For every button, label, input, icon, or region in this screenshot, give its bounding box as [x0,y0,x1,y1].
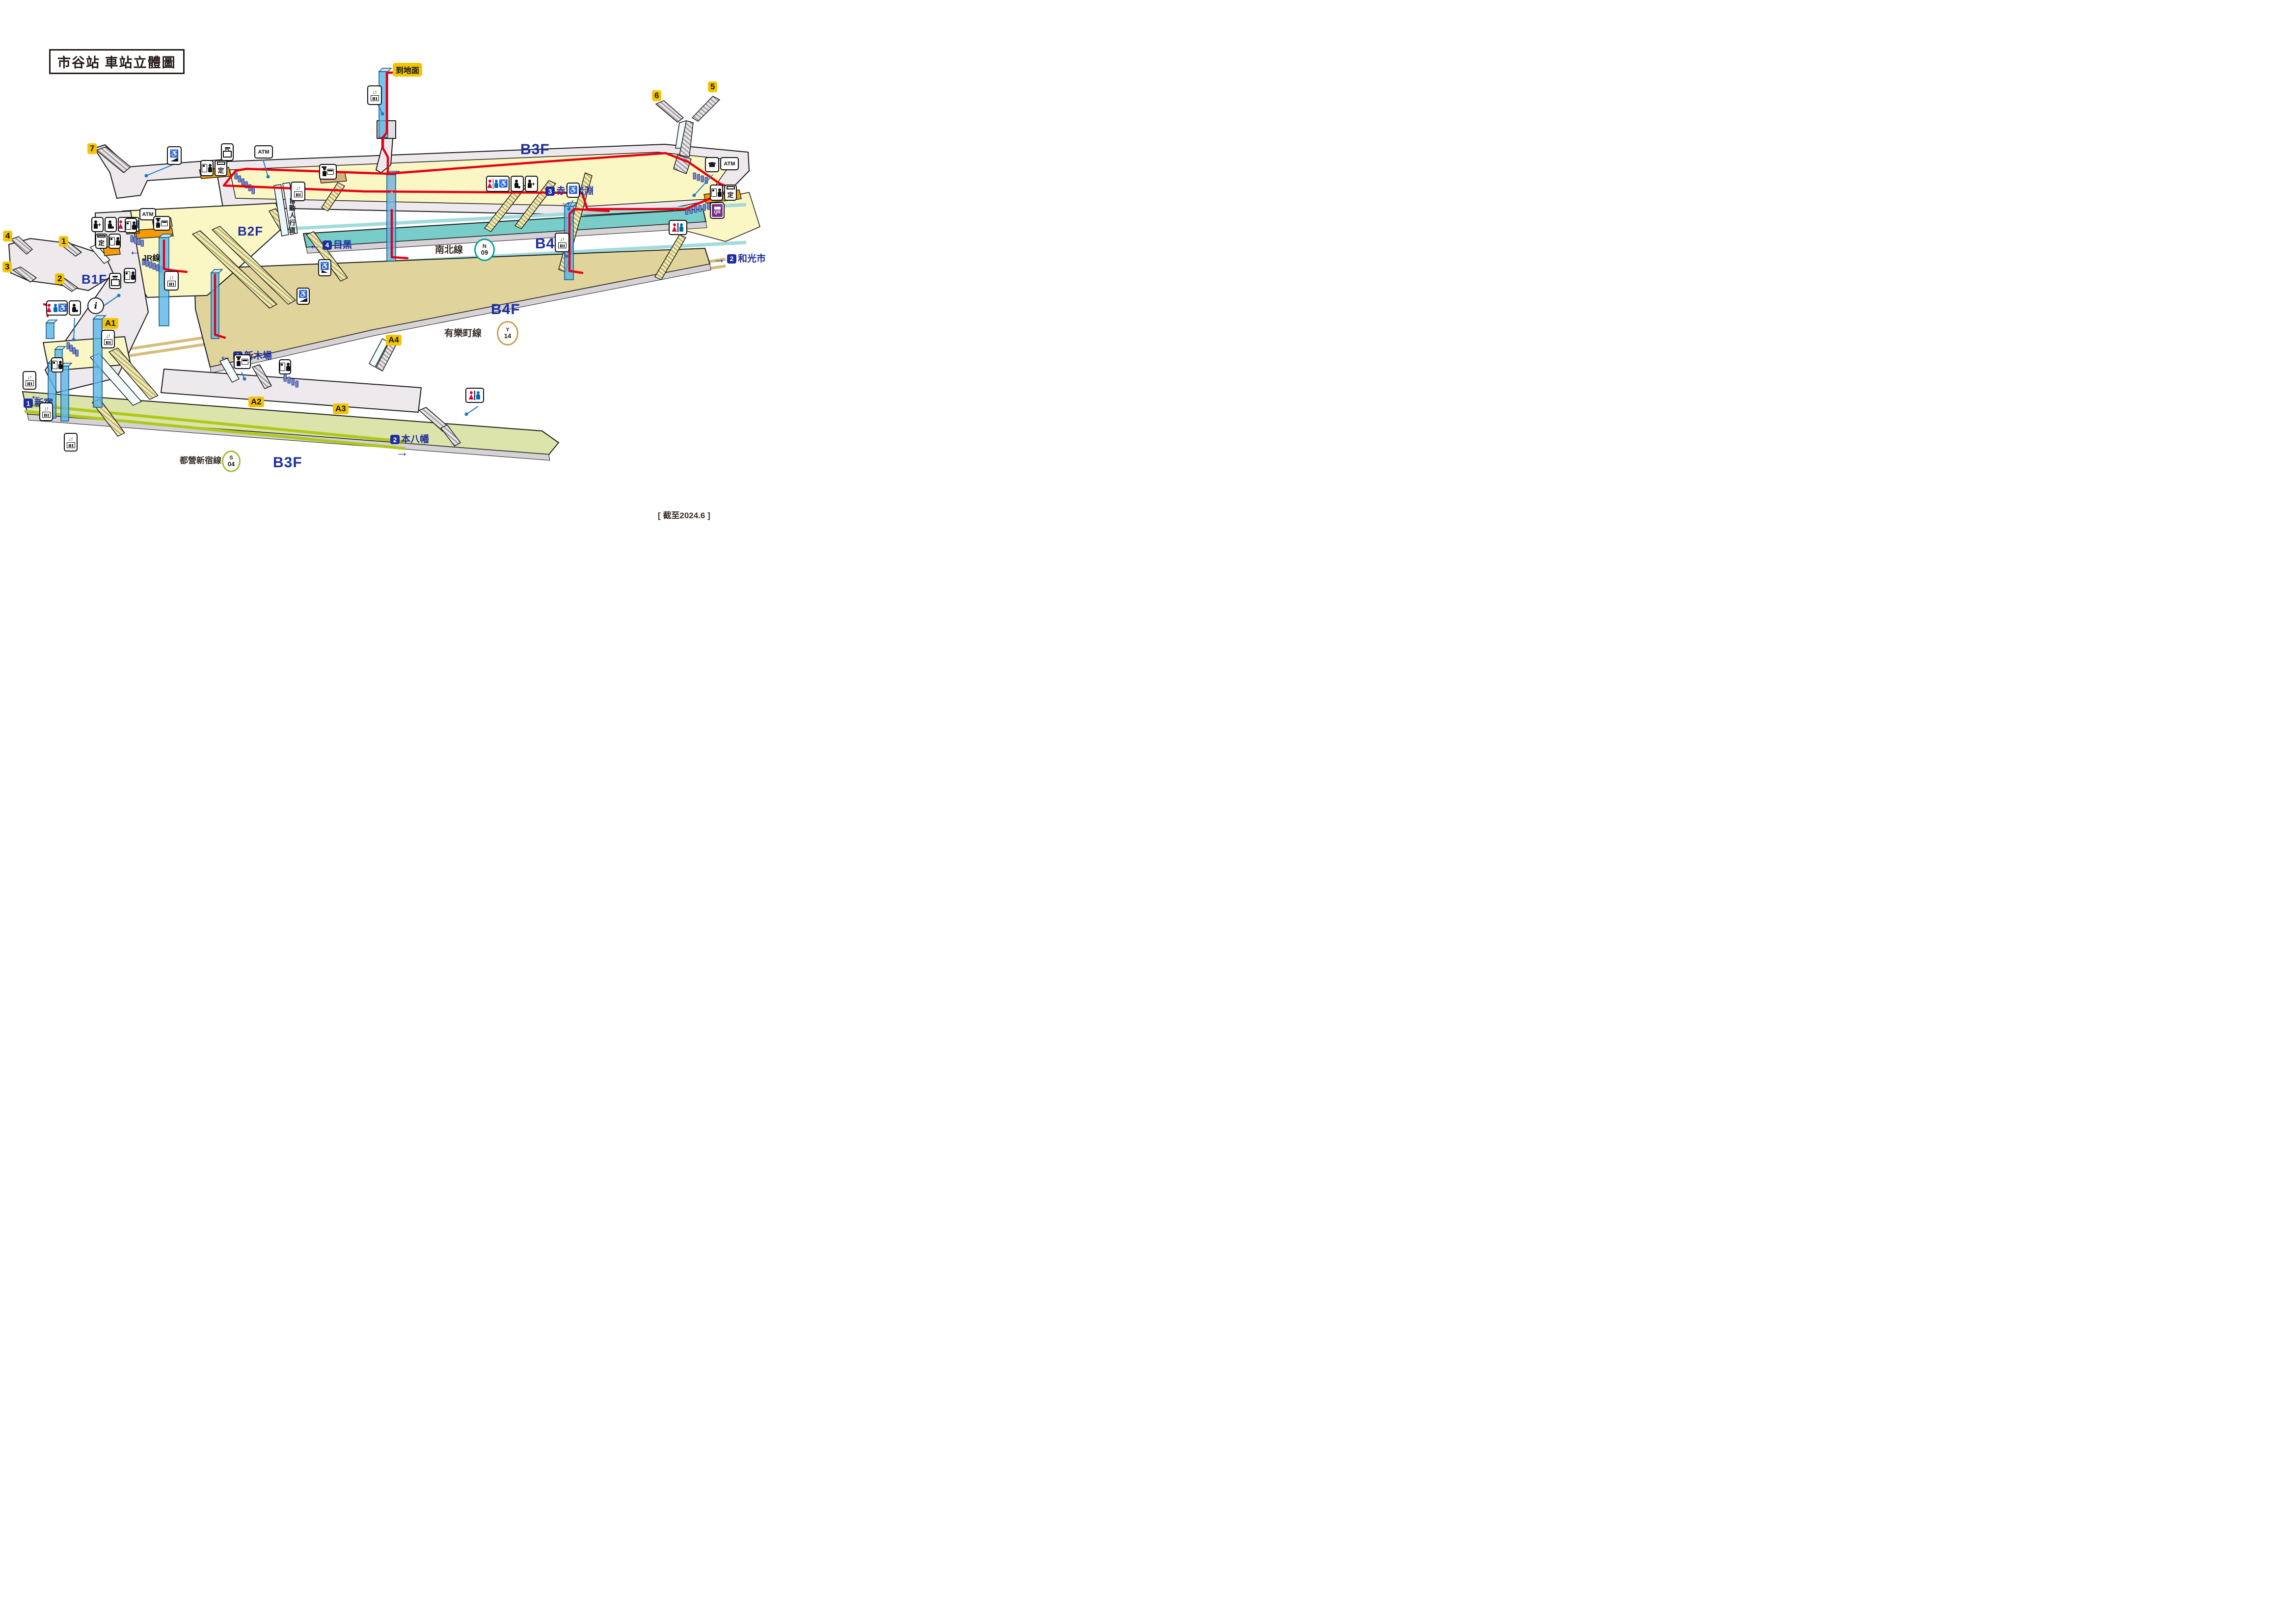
yurakucho-line-name: 有樂町線 [444,329,482,338]
information-icon: i [87,297,104,314]
baby-care-icon [511,176,524,192]
station-staff-icon [153,216,170,231]
exit-badge-2: 2 [55,273,64,284]
elevator-car-glyph [104,339,112,345]
elevator-icon: ↓↑ [64,433,78,452]
direction-wakoshi: → 2 和光市 [713,252,765,265]
atm-icon: ATM [720,157,739,170]
public-phone-icon: ☎ [705,157,719,172]
commuter-pass-icon: 定 [215,160,227,176]
wheelchair-ramp-icon: ♿ [167,146,182,165]
ticket-machine-icon [108,234,121,249]
toilet-icon: ♿ [46,300,68,316]
ticket-machine-icon [124,268,136,283]
elevator-car-glyph [371,95,379,101]
elevator-car-glyph [26,380,34,386]
namboku-station-code: N 09 [474,239,495,261]
ticket-machine-icon [125,218,137,233]
floor-label-b4f-yurakucho: B4F [491,302,520,317]
toei-shinjuku-station-code: S 04 [222,451,241,472]
exit-badge-6: 6 [652,90,661,101]
qr-ticket-icon: QR [710,202,725,219]
staff-person-glyph [156,219,161,228]
baby-care-icon [105,217,117,232]
arrow-motoyawata: → [396,446,408,458]
floor-label-b2f: B2F [238,225,263,238]
toilet-icon: ♿ [486,176,510,192]
floor-label-b3f: B3F [520,142,550,157]
first-aid-icon: + [91,217,104,232]
train-glyph [242,359,248,365]
wheelchair-escalator-icon: ♿ [318,259,331,276]
elevator-icon: ↓↑ [367,85,382,105]
train-glyph [327,169,334,175]
to-ground-label: 到地面 [393,63,422,77]
commuter-pass-icon: 定 [724,185,737,201]
jr-line-label: JR線 [142,251,160,263]
moving-walkway-label: 自動人行道 [289,197,295,234]
exit-badge-7: 7 [87,143,97,154]
namboku-line-name: 南北線 [435,245,463,255]
direction-motoyawata: 2 本八幡 [390,435,429,444]
toei-shinjuku-line-name: 都營新宿線 [180,456,221,465]
page-title: 市谷站 車站立體圖 [49,49,185,74]
elevator-icon: ↓↑ [101,330,115,348]
coin-locker-icon [109,273,121,289]
toilet-icon [669,220,687,235]
arrow-jr-line: ← [129,244,141,257]
exit-badge-3: 3 [2,262,12,272]
elevator-icon: ↓↑ [164,271,179,291]
train-glyph [161,220,168,226]
commuter-pass-icon: 定 [95,234,108,249]
station-staff-icon [319,164,337,180]
ticket-machine-icon [51,357,63,372]
elevator-car-glyph [67,442,75,448]
toilet-icon [465,388,484,403]
exit-badge-5: 5 [708,81,717,92]
floor-label-b1f: B1F [81,273,107,286]
exit-badge-a4: A4 [386,335,402,346]
first-aid-icon: + [525,176,538,192]
station-map-stage: 市谷站 車站立體圖 [ 截至2024.6 ] B3F B2F B1F B4F B… [0,0,765,541]
direction-meguro: ← 4 目黑 [308,239,352,251]
floor-label-b3f-toei: B3F [273,455,302,470]
ticket-machine-icon [279,359,291,374]
elevator-car-glyph [558,242,567,248]
coin-locker-icon [221,143,234,161]
wheelchair-ramp-icon: ♿ [297,288,310,305]
elevator-car-glyph [167,281,176,287]
ticket-machine-icon [710,185,723,201]
station-3d-diagram [0,0,765,541]
as-of-note: [ 截至2024.6 ] [658,508,710,521]
exit-badge-1: 1 [59,236,68,247]
staff-person-glyph [322,167,326,176]
wheelchair-icon: ♿ [567,183,580,198]
baby-care-icon [69,300,81,316]
elevator-car-glyph [42,412,51,418]
elevator-icon: ↓↑ [291,182,305,201]
elevator-icon: ↓↑ [39,402,53,421]
elevator-car-glyph [294,191,302,197]
elevator-icon: ↓↑ [555,233,569,252]
exit-badge-a2: A2 [248,397,264,407]
station-staff-icon [234,354,251,369]
exit-badge-a1: A1 [103,318,118,329]
staff-person-glyph [237,357,241,366]
atm-icon: ATM [254,145,273,159]
elevator-icon: ↓↑ [23,371,36,390]
exit-badge-4: 4 [3,231,12,241]
ticket-machine-icon [200,160,214,176]
exit-badge-a3: A3 [333,403,349,414]
yurakucho-station-code: Y 14 [497,321,518,346]
